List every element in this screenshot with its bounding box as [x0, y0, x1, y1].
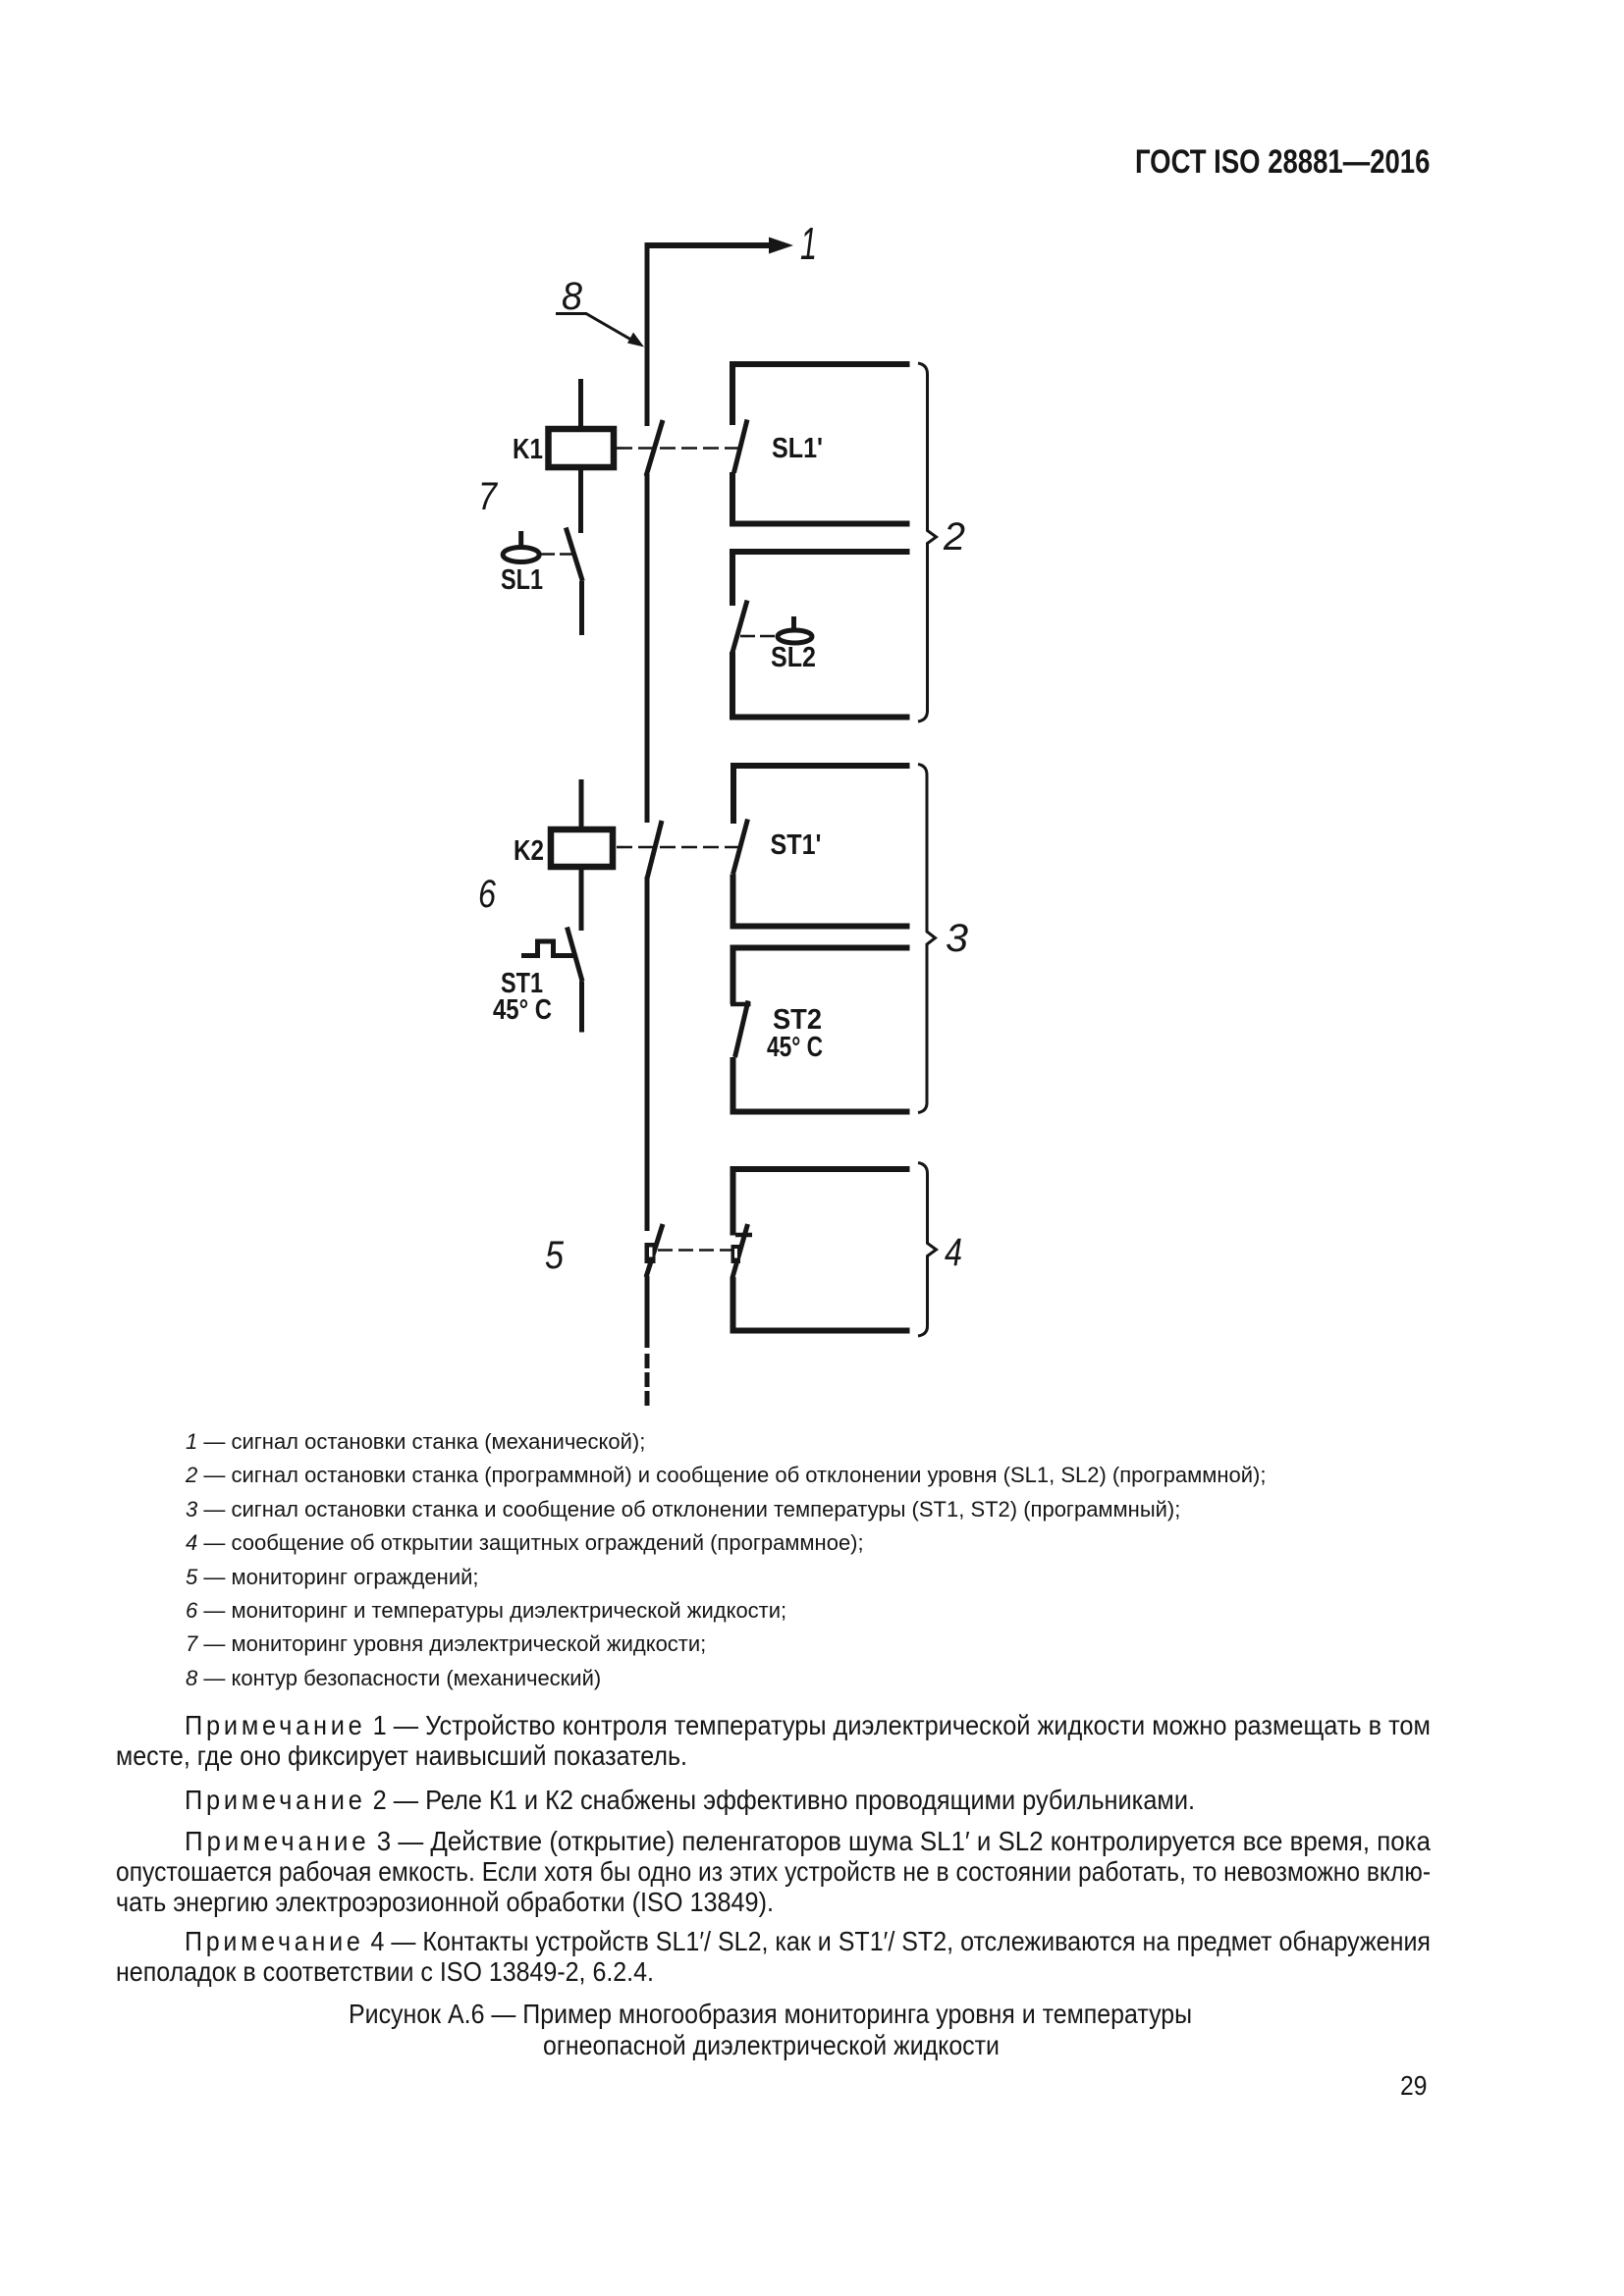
svg-text:SL1': SL1'	[772, 433, 823, 464]
svg-text:4: 4	[945, 1231, 962, 1274]
svg-text:SL2: SL2	[771, 642, 816, 673]
svg-text:3: 3	[946, 917, 968, 960]
svg-text:SL1: SL1	[501, 564, 543, 596]
svg-text:7: 7	[478, 475, 498, 518]
svg-text:5: 5	[545, 1234, 565, 1277]
svg-text:1: 1	[800, 218, 817, 269]
svg-text:ST1': ST1'	[771, 829, 822, 861]
svg-text:45° C: 45° C	[767, 1032, 823, 1063]
svg-text:8: 8	[562, 275, 583, 318]
svg-text:6: 6	[478, 873, 497, 916]
svg-text:45° C: 45° C	[493, 994, 552, 1026]
svg-text:K1: K1	[513, 434, 543, 465]
svg-text:K2: K2	[514, 835, 544, 867]
svg-text:2: 2	[943, 515, 965, 559]
